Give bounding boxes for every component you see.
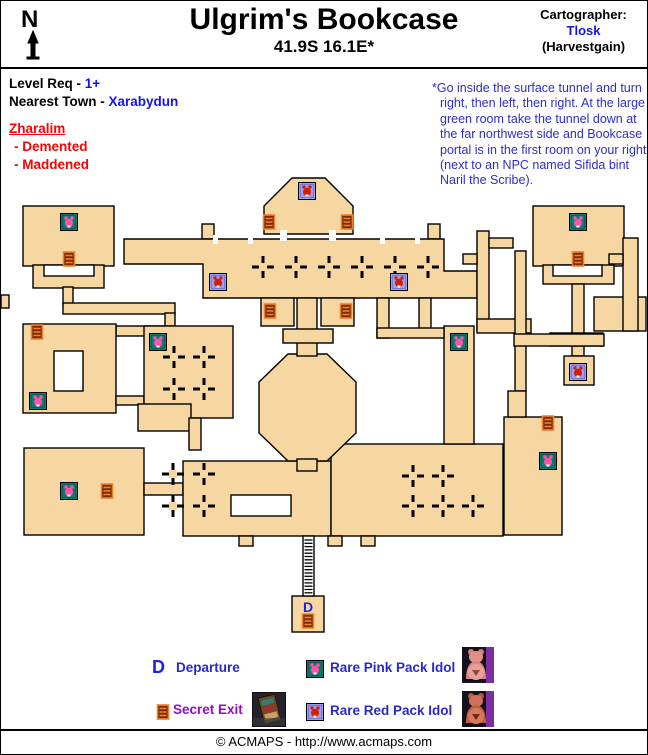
legend-secret-exit-label: Secret Exit	[173, 702, 243, 717]
red-idol-icon	[570, 364, 587, 381]
secret-exit-icon	[32, 325, 43, 339]
secret-exit-icon	[102, 484, 113, 498]
secret-exit-icon	[265, 304, 276, 318]
acmaps-page: N Ulgrim's Bookcase 41.9S 16.1E* Cartogr…	[0, 0, 648, 755]
secret-exit-book-image	[252, 692, 286, 727]
pink-idol-icon	[30, 393, 47, 410]
pink-idol-icon	[61, 214, 78, 231]
pink-idol-icon	[451, 334, 468, 351]
level-req-line: Level Req - 1+	[9, 75, 178, 93]
pink-idol-image	[462, 647, 494, 683]
secret-exit-icon	[341, 304, 352, 318]
dungeon-map: D	[1, 171, 648, 646]
info-block: Level Req - 1+ Nearest Town - Xarabydun …	[9, 75, 178, 174]
cartographer-label: Cartographer:	[526, 7, 641, 23]
cartographer-server: (Harvestgain)	[526, 39, 641, 55]
secret-exit-icon	[573, 252, 584, 266]
footer: © ACMAPS - http://www.acmaps.com	[1, 729, 647, 754]
cartographer-name: Tlosk	[526, 23, 641, 39]
departure-marker: D	[303, 599, 313, 615]
header: N Ulgrim's Bookcase 41.9S 16.1E* Cartogr…	[1, 1, 647, 69]
pink-idol-icon	[150, 334, 167, 351]
cartographer-block: Cartographer: Tlosk (Harvestgain)	[526, 7, 641, 55]
red-idol-icon	[210, 274, 227, 291]
faction-name: Zharalim	[9, 120, 178, 138]
copyright-text: © ACMAPS - http://www.acmaps.com	[216, 734, 432, 749]
ladder-corridor	[303, 536, 314, 596]
pink-idol-icon	[570, 214, 587, 231]
secret-exit-icon	[543, 416, 554, 430]
legend-red-idol-label: Rare Red Pack Idol	[330, 703, 452, 718]
red-idol-icon	[305, 702, 325, 727]
secret-exit-icon	[264, 215, 275, 229]
map-rooms	[1, 178, 646, 632]
nearest-town-line: Nearest Town - Xarabydun	[9, 93, 178, 111]
pink-idol-icon	[540, 453, 557, 470]
secret-exit-icon	[303, 614, 314, 628]
legend-departure-label: Departure	[176, 660, 240, 675]
pink-idol-icon	[305, 659, 325, 684]
pink-idol-icon	[61, 483, 78, 500]
secret-exit-icon	[153, 702, 173, 727]
red-idol-image	[462, 691, 494, 727]
secret-exit-icon	[342, 215, 353, 229]
secret-exit-icon	[64, 252, 75, 266]
red-idol-icon	[299, 183, 316, 200]
legend-pink-idol-label: Rare Pink Pack Idol	[330, 660, 455, 675]
red-idol-icon	[391, 274, 408, 291]
mob-name: - Demented	[14, 138, 178, 156]
legend-departure-symbol: D	[152, 657, 165, 678]
